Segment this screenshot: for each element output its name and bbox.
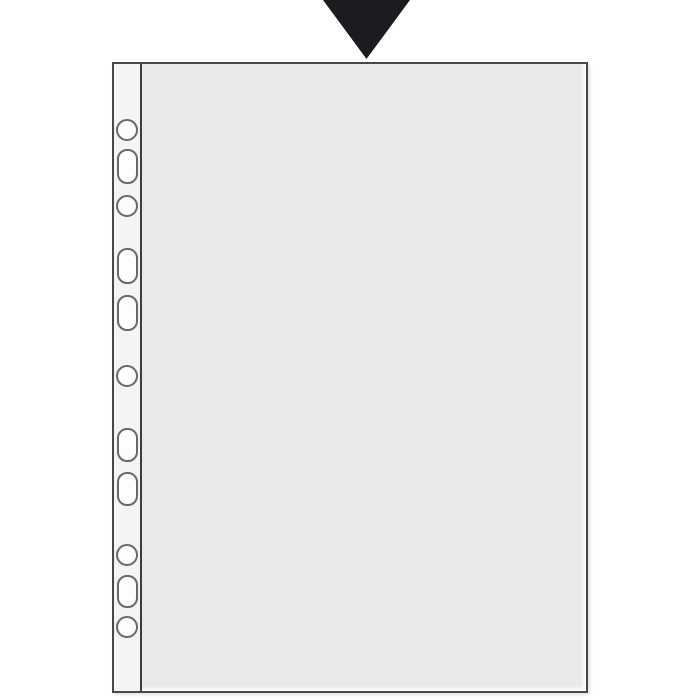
round-punch-hole [116, 616, 138, 638]
round-punch-hole [116, 119, 138, 141]
round-punch-hole [116, 544, 138, 566]
round-punch-hole [116, 365, 138, 387]
oblong-punch-hole [117, 149, 138, 184]
sheet-protector [112, 62, 588, 693]
oblong-punch-hole [117, 248, 138, 284]
oblong-punch-hole [117, 428, 138, 462]
round-punch-hole [116, 195, 138, 217]
oblong-punch-hole [117, 295, 138, 331]
black-down-arrow-icon [323, 0, 410, 59]
oblong-punch-hole [117, 575, 138, 608]
oblong-punch-hole [117, 472, 138, 506]
product-photo [0, 0, 700, 700]
